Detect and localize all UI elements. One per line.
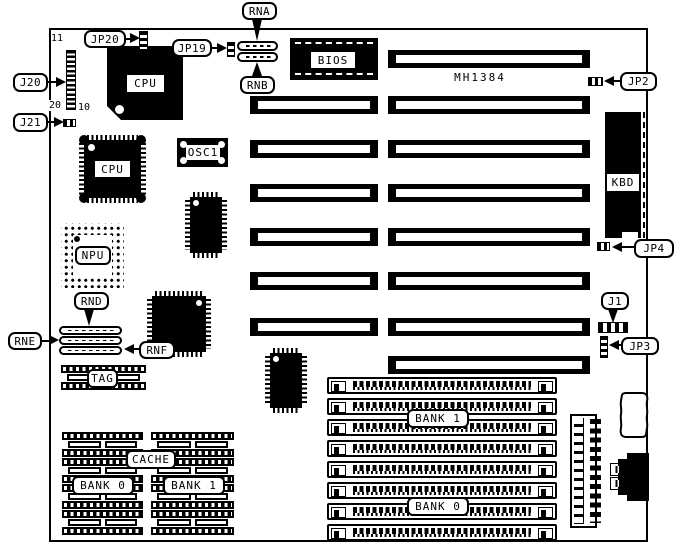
rne-network — [59, 336, 122, 345]
simm-socket — [327, 524, 557, 541]
j20-header — [66, 50, 76, 110]
simm-socket — [327, 440, 557, 457]
callout-j20: J20 — [13, 73, 48, 92]
callout-rnf: RNF — [139, 341, 175, 359]
npu-label: NPU — [75, 246, 111, 265]
osc1-oscillator: OSC1 — [177, 138, 228, 167]
jp4-jumper — [597, 242, 610, 251]
din-pin-block — [610, 463, 622, 476]
j20-pin-11: 11 — [51, 33, 63, 44]
simm-bank0-label: BANK 0 — [407, 497, 469, 516]
j21-jumper — [63, 119, 76, 127]
callout-rnb: RNB — [240, 76, 275, 94]
isa-slot-8bit — [250, 96, 378, 114]
isa-slot — [388, 318, 590, 336]
osc1-label: OSC1 — [186, 145, 220, 160]
isa-slot — [388, 184, 590, 202]
board-model: MH1384 — [440, 71, 520, 84]
simm-socket — [327, 377, 557, 394]
callout-jp19: JP19 — [172, 39, 212, 57]
qfp-chip — [190, 197, 222, 253]
cache-socket — [151, 510, 234, 535]
callout-rna: RNA — [242, 2, 277, 20]
bios-chip: BIOS — [290, 38, 378, 80]
cache-socket — [62, 510, 143, 535]
qfp-chip — [270, 353, 302, 408]
pin1-dot — [196, 300, 202, 306]
cache-label: CACHE — [126, 450, 176, 469]
jp20-jumper — [139, 31, 148, 50]
motherboard-diagram: BIOS MH1384 CPU CPU OSC1 NPU — [0, 0, 685, 550]
npu-socket: NPU — [61, 223, 124, 288]
cpu-label: CPU — [127, 75, 164, 92]
simm-socket — [327, 461, 557, 478]
kbd-chip: KBD — [605, 112, 641, 238]
jp2-jumper — [588, 77, 603, 86]
pin1-dot — [273, 356, 279, 362]
j20-pin-20: 20 — [49, 100, 61, 111]
callout-rnd: RND — [74, 292, 109, 310]
battery-outline — [616, 390, 652, 440]
j20-pin-10: 10 — [78, 102, 90, 113]
isa-slot — [388, 50, 590, 68]
rnf-network — [59, 346, 122, 355]
isa-slot-8bit — [250, 140, 378, 158]
isa-slot-8bit — [250, 318, 378, 336]
isa-slot — [388, 96, 590, 114]
pin1-dot — [88, 144, 95, 151]
rna-network — [237, 41, 278, 51]
isa-slot — [388, 356, 590, 374]
callout-jp2: JP2 — [620, 72, 657, 91]
isa-slot — [388, 140, 590, 158]
j1-header — [598, 322, 628, 333]
kbd-label: KBD — [607, 174, 639, 191]
callout-rne: RNE — [8, 332, 42, 350]
simm-bank1-label: BANK 1 — [407, 409, 469, 428]
cache-bank0-label: BANK 0 — [72, 476, 134, 495]
callout-j1: J1 — [601, 292, 629, 310]
pin1-dot — [193, 200, 199, 206]
rnd-network — [59, 326, 122, 335]
callout-jp4: JP4 — [634, 239, 674, 258]
power-connector — [570, 414, 597, 528]
pin1-dot — [74, 236, 80, 242]
isa-slot-8bit — [250, 184, 378, 202]
callout-jp3: JP3 — [621, 337, 659, 355]
din-pin-block — [610, 477, 622, 490]
callout-jp20: JP20 — [84, 30, 126, 48]
pin1-dot — [115, 105, 124, 114]
rnb-network — [237, 52, 278, 62]
isa-slot — [388, 228, 590, 246]
jp3-jumper — [600, 336, 608, 358]
din-connector — [618, 453, 649, 501]
isa-slot-8bit — [250, 272, 378, 290]
cpu2-chip: CPU — [84, 140, 141, 198]
cpu2-label: CPU — [95, 161, 130, 177]
jp19-jumper — [227, 42, 235, 57]
kbd-dashed-line — [643, 112, 645, 238]
tag-label: TAG — [87, 369, 118, 388]
callout-j21: J21 — [13, 113, 48, 132]
isa-slot — [388, 272, 590, 290]
bios-label: BIOS — [311, 52, 355, 68]
cache-bank1-label: BANK 1 — [163, 476, 225, 495]
cpu-chip: CPU — [107, 46, 183, 120]
isa-slot-8bit — [250, 228, 378, 246]
